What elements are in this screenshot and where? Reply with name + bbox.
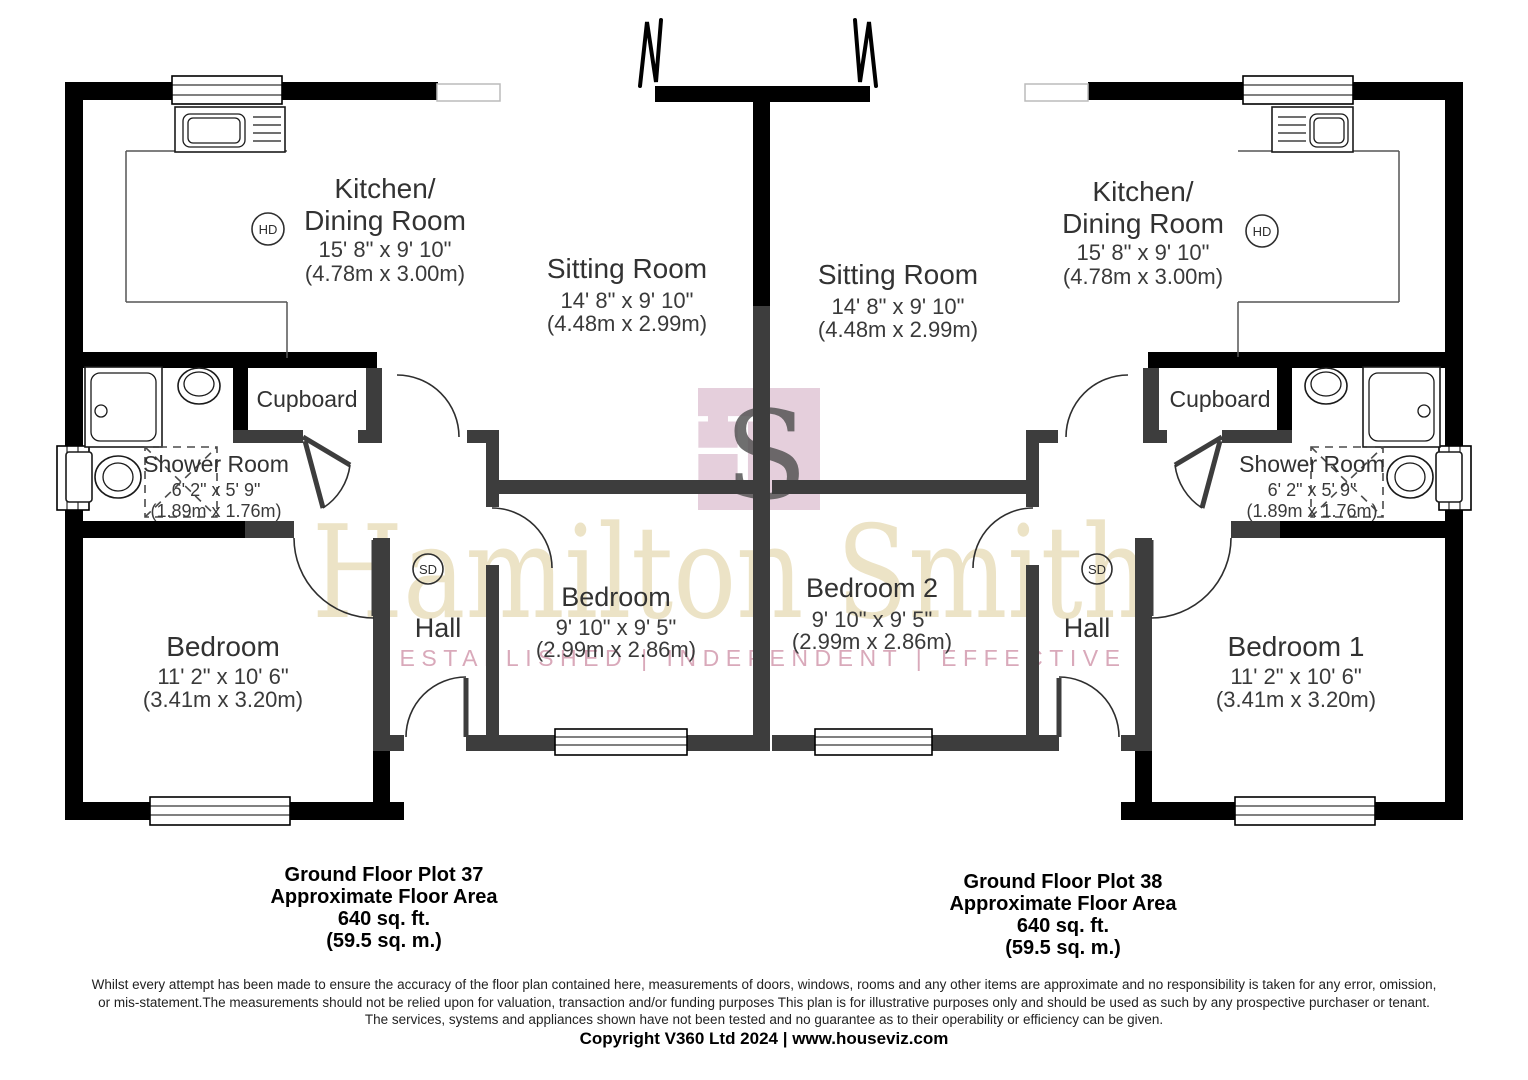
wall-hall-pier-p37: [245, 521, 294, 538]
svg-text:HD: HD: [1253, 224, 1272, 239]
kitchen-outline-p38: [1238, 151, 1399, 357]
wall-midbed-lower-p38: [1026, 565, 1039, 735]
floorplan-page: H S Hamilton Smith ESTABLISHED | INDEPEN…: [0, 0, 1528, 1080]
caption-sqft-p38: 640 sq. ft.: [1017, 915, 1109, 937]
toilet-icon-p38: [1387, 452, 1462, 502]
label-midbedroom-metric-p38: (2.99m x 2.86m): [792, 629, 952, 654]
copyright-line: Copyright V360 Ltd 2024 | www.houseviz.c…: [580, 1029, 949, 1048]
wall-kitchen-bottom-right: [1148, 352, 1463, 368]
kitchen-sink-icon-p37: [175, 107, 285, 152]
door-entry-p38: [1066, 375, 1128, 437]
wall-sitting-divider-p37: [498, 480, 753, 494]
caption-sqm-p38: (59.5 sq. m.): [1005, 937, 1121, 959]
wall-bedroom-foot-p37: [373, 735, 404, 751]
wall-party-lower: [753, 306, 770, 751]
door-cupboard-p37: [303, 437, 350, 508]
wall-cupboard-bottom-b-p38: [1143, 430, 1167, 443]
basin-icon-p38: [1305, 368, 1347, 404]
label-bedroom-metric-p37: (3.41m x 3.20m): [143, 687, 303, 712]
label-shower-metric-p38: (1.89m x 1.76m): [1246, 501, 1377, 521]
label-hall-p38: Hall: [1064, 613, 1111, 643]
caption-sqm-p37: (59.5 sq. m.): [326, 930, 442, 952]
wall-cupboard-bottom-a-p38: [1222, 430, 1292, 443]
door-bedroom-p38: [1151, 538, 1231, 618]
label-bedroom-metric-p38: (3.41m x 3.20m): [1216, 687, 1376, 712]
label-shower-metric-p37: (1.89m x 1.76m): [150, 501, 281, 521]
wall-shower-cupboard-left: [233, 368, 248, 432]
wall-midbed-upper-p38: [1026, 430, 1039, 507]
door-rear-p37: [406, 677, 466, 737]
label-sitting-metric-p38: (4.48m x 2.99m): [818, 317, 978, 342]
disclaimer-line1: Whilst every attempt has been made to en…: [92, 977, 1437, 992]
label-midbedroom-metric-p37: (2.99m x 2.86m): [536, 637, 696, 662]
caption-title-p38: Ground Floor Plot 38: [964, 871, 1163, 893]
window-midbedroom-p37: [555, 729, 687, 755]
caption-plot38: Ground Floor Plot 38 Approximate Floor A…: [949, 871, 1177, 959]
heat-detector-icon-p38: HD: [1246, 215, 1278, 247]
wall-break-icon-left: [640, 20, 661, 86]
kitchen-outline-p37: [126, 151, 287, 358]
label-midbedroom-p37: Bedroom: [561, 582, 671, 612]
porch-strip-right: [1025, 84, 1088, 101]
wall-party-top: [753, 86, 770, 306]
window-bedroom-p38: [1235, 797, 1375, 825]
kitchen-sink-icon-p38: [1272, 107, 1353, 152]
label-kitchen-p38: Kitchen/: [1092, 176, 1193, 207]
label-kitchen-metric-p38: (4.78m x 3.00m): [1063, 264, 1223, 289]
label-shower-p37: Shower Room: [143, 451, 289, 477]
disclaimer-line2: or mis-statement.The measurements should…: [98, 995, 1430, 1010]
label-sitting-metric-p37: (4.48m x 2.99m): [547, 311, 707, 336]
label-sitting-dims-p38: 14' 8" x 9' 10": [832, 294, 965, 319]
disclaimer-line3: The services, systems and appliances sho…: [365, 1012, 1163, 1027]
caption-plot37: Ground Floor Plot 37 Approximate Floor A…: [270, 864, 498, 952]
door-entry-p37: [397, 375, 459, 437]
label-shower-p38: Shower Room: [1239, 451, 1385, 477]
wall-bedroom-foot-p38: [1121, 735, 1152, 751]
wall-midbed-upper-p37: [486, 430, 499, 507]
label-sitting-p38: Sitting Room: [818, 259, 978, 290]
label-hall-p37: Hall: [415, 613, 462, 643]
caption-sqft-p37: 640 sq. ft.: [338, 908, 430, 930]
label-kitchen-dims-p37: 15' 8" x 9' 10": [319, 237, 452, 262]
toilet-icon-p37: [66, 452, 141, 502]
window-kitchen-p37: [172, 76, 282, 104]
label-bedroom-p38: Bedroom 1: [1228, 631, 1365, 662]
shower-tray-icon-p38: [1363, 367, 1440, 447]
wall-shower-bottom-right: [1280, 521, 1463, 538]
caption-title-p37: Ground Floor Plot 37: [285, 864, 484, 886]
wall-shower-cupboard-right: [1277, 368, 1292, 432]
wall-hall-pier-p38: [1231, 521, 1280, 538]
wall-shower-bottom-left: [65, 521, 245, 538]
label-kitchen-dims-p38: 15' 8" x 9' 10": [1077, 240, 1210, 265]
porch-strip-left: [437, 84, 500, 101]
caption-area-p37: Approximate Floor Area: [270, 886, 498, 908]
window-bedroom-p37: [150, 797, 290, 825]
wall-cupboard-bottom-a-p37: [233, 430, 303, 443]
floorplan-canvas: H S Hamilton Smith ESTABLISHED | INDEPEN…: [0, 0, 1528, 1080]
wall-break-icon-right: [855, 20, 876, 86]
label-cupboard-p38: Cupboard: [1169, 386, 1270, 412]
label-kitchen2-p38: Dining Room: [1062, 208, 1224, 239]
footer: Whilst every attempt has been made to en…: [92, 977, 1437, 1048]
svg-text:SD: SD: [419, 562, 437, 577]
wall-kitchen-bottom-left: [65, 352, 377, 368]
window-midbedroom-p38: [815, 729, 932, 755]
basin-icon-p37: [178, 368, 220, 404]
wall-step-right: [1135, 751, 1152, 820]
label-kitchen2-p37: Dining Room: [304, 205, 466, 236]
label-bedroom-dims-p38: 11' 2" x 10' 6": [1230, 664, 1361, 689]
label-shower-dims-p38: 6' 2" x 5' 9": [1268, 480, 1357, 500]
room-labels-plot38: Kitchen/ Dining Room 15' 8" x 9' 10" (4.…: [792, 176, 1385, 712]
room-labels-plot37: Kitchen/ Dining Room 15' 8" x 9' 10" (4.…: [143, 173, 707, 712]
svg-text:HD: HD: [259, 222, 278, 237]
wall-sitting-divider-p38: [772, 480, 1027, 494]
door-cupboard-p38: [1175, 437, 1222, 508]
shower-tray-icon-p37: [85, 367, 162, 447]
label-sitting-p37: Sitting Room: [547, 253, 707, 284]
label-cupboard-p37: Cupboard: [256, 386, 357, 412]
label-midbedroom-p38: Bedroom 2: [806, 573, 938, 603]
label-bedroom-dims-p37: 11' 2" x 10' 6": [157, 664, 288, 689]
label-bedroom-p37: Bedroom: [166, 631, 280, 662]
heat-detector-icon-p37: HD: [252, 213, 284, 245]
wall-step-left: [373, 751, 390, 820]
wall-midbed-lower-p37: [486, 565, 499, 735]
svg-text:SD: SD: [1088, 562, 1106, 577]
window-kitchen-p38: [1243, 76, 1353, 104]
door-rear-p38: [1059, 677, 1119, 737]
label-kitchen-p37: Kitchen/: [334, 173, 435, 204]
label-sitting-dims-p37: 14' 8" x 9' 10": [561, 288, 694, 313]
label-kitchen-metric-p37: (4.78m x 3.00m): [305, 261, 465, 286]
caption-area-p38: Approximate Floor Area: [949, 893, 1177, 915]
wall-cupboard-bottom-b-p37: [358, 430, 382, 443]
label-shower-dims-p37: 6' 2" x 5' 9": [172, 480, 261, 500]
